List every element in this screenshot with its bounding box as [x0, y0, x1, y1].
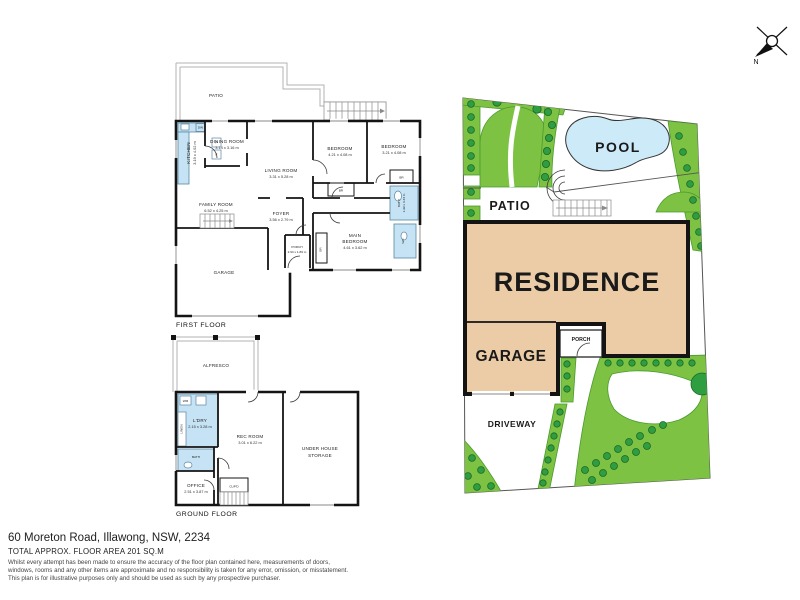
- wc-label: WC: [401, 238, 405, 244]
- porch-label: PORCH: [291, 245, 302, 249]
- robe-label-2: BR: [399, 176, 404, 180]
- office-label: OFFICE: [187, 483, 205, 488]
- alfresco-label: ALFRESCO: [203, 363, 230, 368]
- family-dims: 6.52 x 4.25 m: [204, 208, 228, 213]
- property-address: 60 Moreton Road, Illawong, NSW, 2234: [8, 532, 211, 544]
- floor-plan-canvas: PATIO: [0, 0, 800, 600]
- ground-bath-room: [178, 449, 214, 471]
- bath-dims: 1.99 x 3.43 m: [402, 193, 406, 212]
- rec-room-dims: 3.01 x 6.22 m: [238, 440, 262, 445]
- office-dims: 2.51 x 3.87 m: [184, 489, 208, 494]
- footer: 60 Moreton Road, Illawong, NSW, 2234 TOT…: [7, 532, 348, 582]
- bedroom2-label: BEDROOM: [381, 144, 406, 149]
- garage-stairs: [200, 214, 234, 228]
- wc-room: [394, 224, 416, 258]
- laundry-dims: 2.15 x 3.28 m: [188, 424, 212, 429]
- bath-label: BATH: [397, 199, 401, 207]
- site-plan: POOL PATIO PORCH RESIDENCE GARAGE DRIVEW…: [462, 95, 713, 493]
- bedroom1-dims: 4.21 x 4.08 m: [328, 152, 352, 157]
- floor-plan-page: PATIO: [0, 0, 800, 600]
- ground-floor-plan: ALFRESCO WM LINEN BATH: [171, 335, 358, 518]
- foyer-dims: 3.56 x 2.79 m: [269, 217, 293, 222]
- first-floor-caption: FIRST FLOOR: [176, 322, 226, 329]
- main-bedroom-dims: 4.61 x 3.62 m: [343, 245, 367, 250]
- ground-toilet: [184, 462, 192, 468]
- driveway-label: DRIVEWAY: [488, 419, 537, 429]
- living-dims: 3.31 x 5.28 m: [269, 174, 293, 179]
- floor-area-text: TOTAL APPROX. FLOOR AREA 201 SQ.M: [8, 547, 164, 556]
- robe-label-3: BR: [319, 247, 323, 252]
- disclaimer-line-2: windows, rooms and any other items are a…: [7, 567, 348, 574]
- robe-label-1: BR: [339, 189, 344, 193]
- garage-label: GARAGE: [214, 270, 235, 275]
- patio-label: PATIO: [209, 93, 223, 98]
- laundry-tub: [196, 396, 206, 405]
- linen-label: LINEN: [180, 424, 184, 433]
- site-patio-label: PATIO: [489, 199, 530, 213]
- kitchen-sink: [181, 124, 189, 130]
- first-floor-plan: PATIO: [174, 63, 423, 329]
- main-bedroom-label-1: MAIN: [349, 233, 361, 238]
- ground-bath-label: BATH: [192, 455, 200, 459]
- foyer-label: FOYER: [273, 211, 290, 216]
- ground-floor-wet-areas: WM LINEN BATH: [178, 394, 218, 471]
- cupboard-label: CUP'D: [229, 485, 239, 489]
- porch-dims: 2.94 x 1.89 m: [288, 250, 307, 254]
- washing-machine-label: WM: [183, 399, 189, 403]
- site-garage-label: GARAGE: [475, 348, 546, 365]
- bedroom1-label: BEDROOM: [327, 146, 352, 151]
- compass: N: [753, 27, 787, 66]
- kitchen-label: KITCHEN: [186, 142, 191, 164]
- disclaimer-line-1: Whilst every attempt has been made to en…: [8, 559, 330, 566]
- storage-label-1: UNDER HOUSE: [302, 446, 338, 451]
- patio-stairs: [324, 102, 386, 120]
- family-label: FAMILY ROOM: [199, 202, 233, 207]
- ground-stairs: [220, 492, 248, 505]
- large-tree: [691, 373, 713, 395]
- disclaimer-line-3: This plan is for illustrative purposes o…: [8, 575, 281, 582]
- main-bedroom-label-2: BEDROOM: [342, 239, 367, 244]
- dishwasher-label: DW: [198, 126, 203, 130]
- north-label: N: [753, 59, 758, 66]
- dining-dims: 3.14 x 3.16 m: [215, 145, 239, 150]
- pool-label: POOL: [595, 139, 641, 155]
- rec-room-label: REC ROOM: [237, 434, 264, 439]
- bedroom2-dims: 3.21 x 4.08 m: [382, 150, 406, 155]
- site-porch-label: PORCH: [572, 337, 591, 343]
- living-label: LIVING ROOM: [265, 168, 298, 173]
- kitchen-dims: 3.19 x 4.02 m: [192, 141, 197, 165]
- site-porch-shape: [560, 330, 602, 357]
- storage-label-2: STORAGE: [308, 453, 332, 458]
- residence-label: RESIDENCE: [494, 267, 661, 297]
- ground-floor-caption: GROUND FLOOR: [176, 511, 238, 518]
- laundry-label: L'DRY: [193, 418, 207, 423]
- dining-label: DINING ROOM: [210, 139, 244, 144]
